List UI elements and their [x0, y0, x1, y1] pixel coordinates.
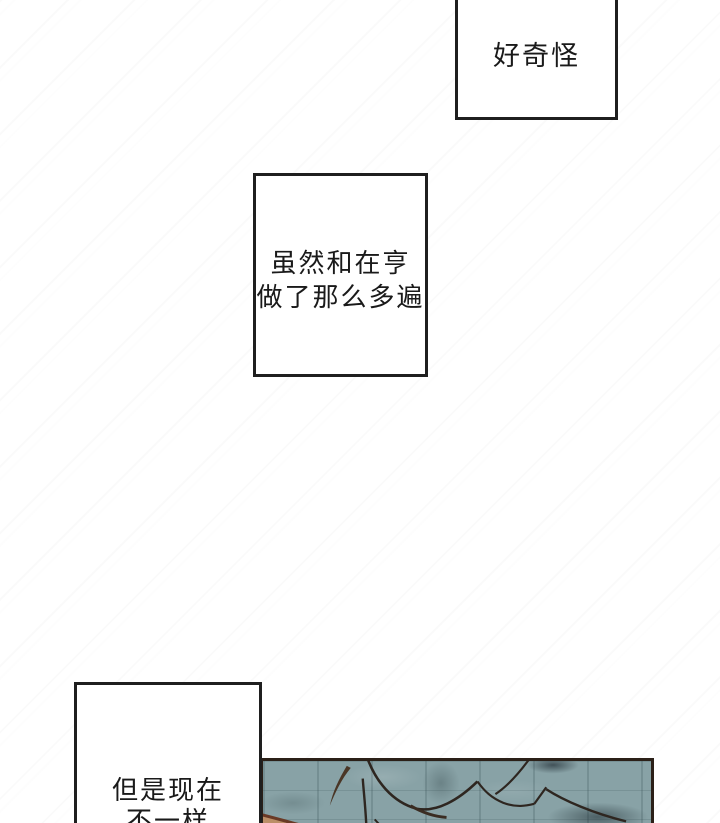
caption-box-top-right: 好奇怪	[455, 0, 618, 120]
hair-strand	[375, 819, 393, 823]
caption-text-line: 不一样	[126, 806, 210, 823]
comic-page: 好奇怪 虽然和在亨 做了那么多遍	[0, 0, 720, 823]
caption-text-line: 做了那么多遍	[256, 280, 424, 314]
caption-box-middle: 虽然和在亨 做了那么多遍	[253, 173, 428, 377]
hair-line-art	[263, 761, 651, 823]
hair-spike	[534, 787, 546, 804]
caption-box-bottom-left: 但是现在 不一样	[74, 682, 262, 823]
art-panel	[262, 758, 654, 823]
hair-strand	[330, 766, 351, 806]
caption-text-line: 好奇怪	[493, 40, 580, 72]
hair-outline	[546, 789, 626, 821]
hair-outline	[368, 761, 478, 809]
caption-text-line: 虽然和在亨	[270, 246, 410, 280]
hair-strand	[363, 779, 367, 823]
caption-text-line: 但是现在	[112, 775, 224, 806]
skin-corner	[263, 815, 309, 823]
hair-strand	[495, 761, 529, 794]
